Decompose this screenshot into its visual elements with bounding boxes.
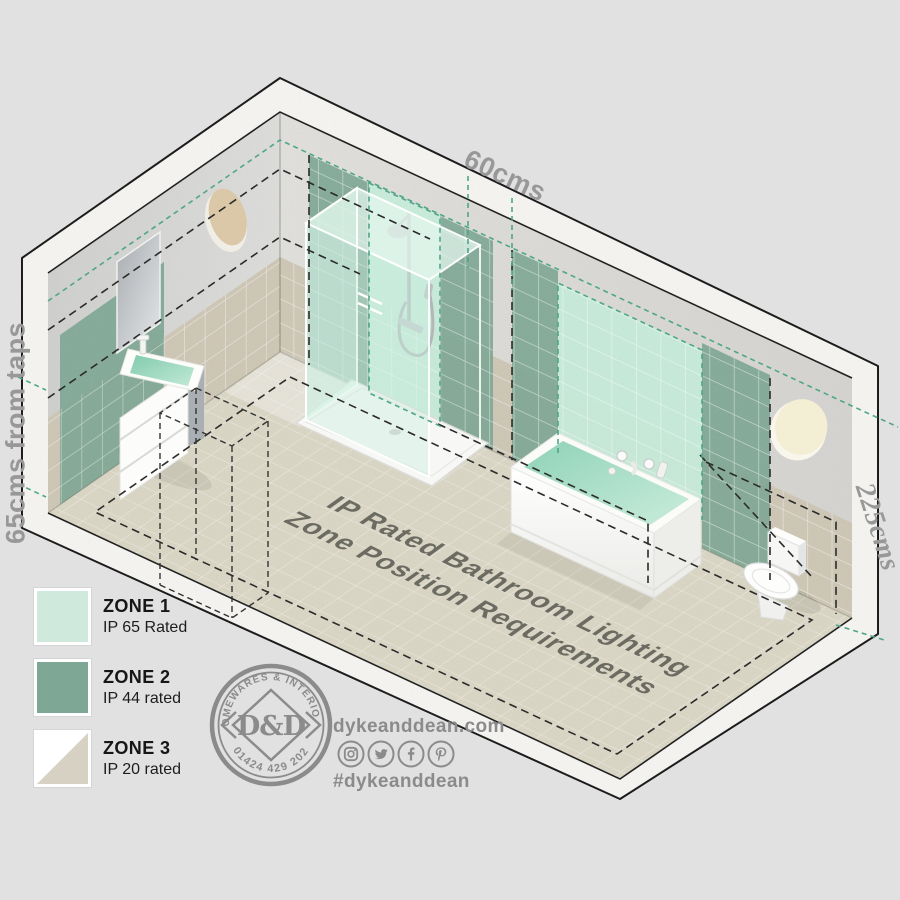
legend-item-zone1: ZONE 1 IP 65 Rated [34,588,187,645]
zone2-swatch [34,659,91,716]
logo-monogram: D&D [237,711,306,742]
zone2-label: ZONE 2 [103,666,181,689]
zone1-swatch [34,588,91,645]
zone1-rating: IP 65 Rated [103,618,187,638]
website-link[interactable]: dykeanddean.com [333,716,505,737]
zone2-rating: IP 44 rated [103,689,181,709]
dimension-left: 65cms from taps [1,322,32,544]
zone1-label: ZONE 1 [103,595,187,618]
legend-item-zone2: ZONE 2 IP 44 rated [34,659,187,716]
social-block: dykeanddean.com #dykeanddean [333,716,505,792]
zone3-rating: IP 20 rated [103,760,181,780]
instagram-icon[interactable] [339,742,364,767]
poster-canvas: IP Rated Bathroom Lighting Zone Position… [0,0,900,900]
pinterest-icon[interactable] [429,742,454,767]
zone3-label: ZONE 3 [103,737,181,760]
twitter-icon[interactable] [369,742,394,767]
legend-item-zone3: ZONE 3 IP 20 rated [34,730,187,787]
zone-legend: ZONE 1 IP 65 Rated ZONE 2 IP 44 rated ZO… [34,588,187,787]
zone3-swatch [34,730,91,787]
facebook-icon[interactable] [399,742,424,767]
hashtag-label: #dykeanddean [333,771,470,792]
